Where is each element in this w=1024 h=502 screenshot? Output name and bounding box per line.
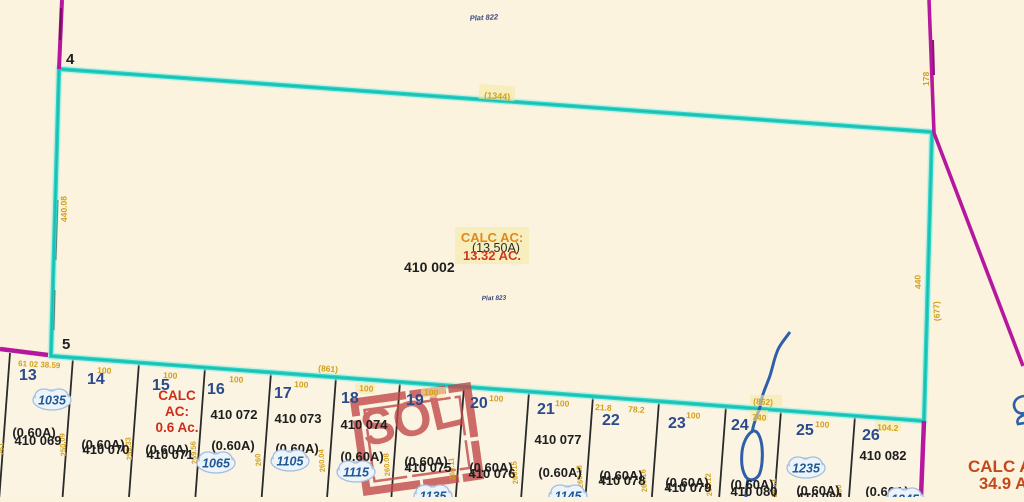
svg-text:17: 17 — [274, 385, 292, 402]
svg-text:21.8: 21.8 — [595, 402, 612, 413]
svg-text:410 070: 410 070 — [83, 442, 130, 457]
svg-text:1135: 1135 — [420, 490, 448, 498]
svg-text:1235: 1235 — [792, 462, 821, 476]
svg-text:(677): (677) — [931, 301, 942, 322]
svg-text:410 072: 410 072 — [211, 407, 258, 422]
svg-text:100: 100 — [97, 365, 112, 376]
svg-text:19: 19 — [406, 392, 424, 409]
svg-text:100: 100 — [686, 410, 701, 421]
svg-text:100: 100 — [424, 387, 439, 398]
svg-text:22: 22 — [602, 412, 620, 429]
svg-text:410 076: 410 076 — [469, 466, 516, 481]
svg-text:1345: 1345 — [891, 493, 920, 498]
svg-text:410 069: 410 069 — [15, 433, 62, 448]
svg-text:AC:: AC: — [165, 404, 189, 419]
svg-text:(1344): (1344) — [484, 90, 511, 102]
svg-text:Plat 823: Plat 823 — [482, 295, 507, 303]
svg-text:440.08: 440.08 — [59, 196, 69, 222]
svg-text:410 071: 410 071 — [147, 447, 194, 462]
svg-text:740: 740 — [752, 412, 767, 423]
svg-text:410 073: 410 073 — [275, 411, 322, 426]
svg-text:0.6 Ac.: 0.6 Ac. — [155, 420, 198, 435]
svg-text:410 082: 410 082 — [860, 448, 907, 463]
svg-text:34.9 Ac.: 34.9 Ac. — [979, 475, 1024, 493]
svg-text:13: 13 — [19, 367, 37, 384]
svg-text:410 077: 410 077 — [535, 432, 582, 447]
svg-text:23: 23 — [668, 415, 686, 432]
svg-text:100: 100 — [555, 398, 570, 409]
svg-text:100: 100 — [815, 419, 830, 430]
svg-text:1065: 1065 — [202, 457, 231, 471]
svg-text:18: 18 — [341, 390, 359, 407]
svg-text:104.2: 104.2 — [877, 422, 899, 433]
svg-text:20: 20 — [470, 395, 488, 412]
svg-text:CALC AC.: CALC AC. — [968, 457, 1024, 476]
svg-text:CALC: CALC — [158, 388, 196, 403]
svg-text:261: 261 — [0, 442, 6, 455]
svg-text:100: 100 — [163, 370, 178, 381]
svg-text:78.2: 78.2 — [628, 404, 645, 415]
svg-text:(0.60A): (0.60A) — [211, 438, 254, 453]
svg-text:100: 100 — [294, 379, 309, 390]
svg-text:410 078: 410 078 — [599, 473, 646, 488]
svg-text:(861): (861) — [318, 363, 339, 374]
svg-text:410 002: 410 002 — [404, 259, 455, 275]
svg-text:1115: 1115 — [343, 466, 370, 480]
svg-text:24: 24 — [731, 417, 749, 434]
svg-text:1105: 1105 — [277, 455, 305, 469]
svg-text:1035: 1035 — [38, 394, 67, 408]
svg-text:4: 4 — [66, 51, 75, 68]
svg-text:21: 21 — [537, 401, 555, 418]
svg-text:410 080: 410 080 — [731, 484, 778, 497]
svg-text:100: 100 — [359, 383, 374, 394]
svg-text:13.32 AC.: 13.32 AC. — [463, 248, 521, 263]
svg-text:178: 178 — [921, 72, 931, 86]
svg-text:410 074: 410 074 — [341, 417, 389, 432]
svg-text:100: 100 — [229, 374, 244, 385]
svg-text:1145: 1145 — [555, 490, 583, 498]
svg-text:16: 16 — [207, 381, 225, 398]
svg-text:410 075: 410 075 — [405, 460, 452, 475]
svg-text:260: 260 — [253, 453, 263, 466]
svg-text:25: 25 — [796, 422, 814, 439]
svg-text:(862): (862) — [753, 396, 774, 407]
svg-text:5: 5 — [62, 336, 70, 353]
svg-text:100: 100 — [489, 393, 504, 404]
svg-text:Plat 822: Plat 822 — [469, 12, 499, 23]
svg-text:(0.60A): (0.60A) — [538, 465, 581, 480]
svg-text:440: 440 — [913, 274, 923, 289]
svg-text:410 079: 410 079 — [665, 480, 712, 495]
svg-text:410 081: 410 081 — [797, 490, 844, 497]
